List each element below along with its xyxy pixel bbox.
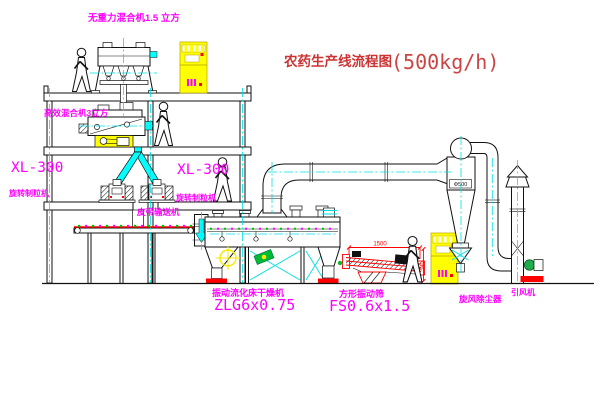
label-granulator-left-name: 旋转制粒机 [8,188,49,198]
cyclone-dust-collector: Φ500 [447,138,484,272]
fan-impeller [524,260,534,270]
label-cyclone-size: Φ500 [454,182,468,188]
page-title-capacity: (500kg/h) [391,50,499,74]
dim-sieve-length: 1500 [373,242,387,248]
label-granulator-center-name: 旋转制粒机 [175,193,216,203]
person-figure [73,48,91,91]
label-fan: 引风机 [511,287,535,297]
person-figure [155,102,173,145]
label-cyclone: 旋风除尘器 [458,294,502,304]
rotary-granulator-right [139,180,175,203]
page-title: 农药生产线流程图 [283,53,392,69]
label-sieve-model: FS0.6x1.5 [329,297,410,315]
bucket-elevator-top [180,42,207,93]
label-top-mixer: 无重力混合机1.5 立方 [87,12,180,24]
label-dryer-model: ZLG6x0.75 [214,296,295,314]
exhaust-duct [257,158,448,218]
label-belt-conveyor: 皮带输送机 [136,207,180,217]
rotary-granulator-left [99,180,135,203]
label-granulator-center-model: XL-300 [177,162,229,178]
belt-conveyor [74,210,194,283]
stack-and-fan [484,143,544,284]
rotary-valve [254,249,274,264]
fluid-bed-dryer [193,206,341,283]
dim-sieve-height: 540 [420,261,426,270]
process-flow-drawing: Φ500 [0,0,600,403]
label-granulator-left-model: XL-300 [11,160,63,176]
flow-diagram-page: Φ500 [0,0,600,403]
label-mid-mixer: 高效混合机3立方 [44,108,109,118]
